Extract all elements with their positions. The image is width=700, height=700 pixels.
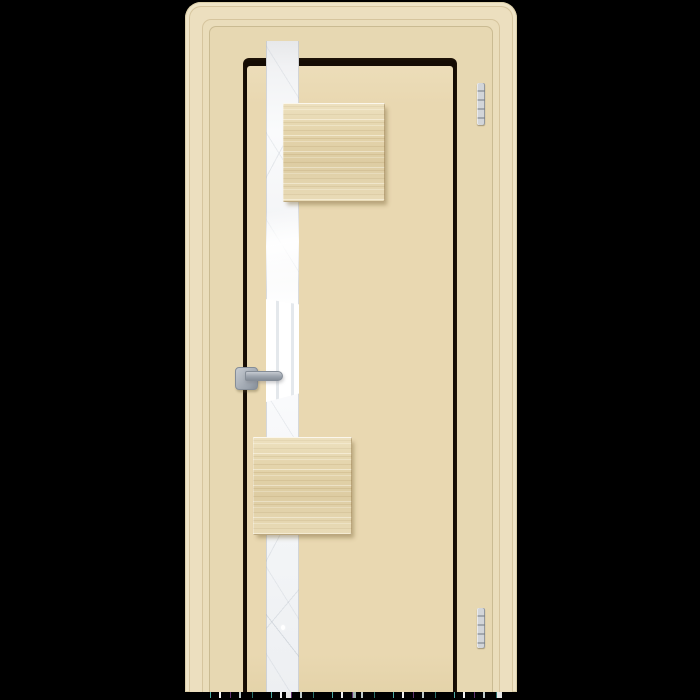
product-image-canvas <box>0 0 700 700</box>
wood-panel-top <box>283 103 385 202</box>
floor-edge-artifact <box>203 692 515 698</box>
glass-window-reflection <box>266 297 299 403</box>
glass-highlight-dot <box>281 625 285 630</box>
hinge-top <box>477 83 485 125</box>
hinge-bottom <box>477 608 485 648</box>
handle-lever <box>245 371 283 381</box>
wood-panel-bottom <box>253 437 352 535</box>
glass-highlight-band <box>266 205 299 290</box>
